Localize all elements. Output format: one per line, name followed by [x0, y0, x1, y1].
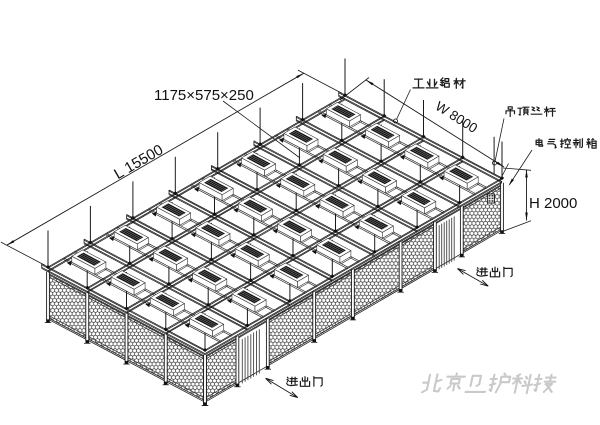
svg-text:H 2000: H 2000: [529, 195, 577, 212]
svg-text:1175×575×250: 1175×575×250: [154, 87, 254, 104]
